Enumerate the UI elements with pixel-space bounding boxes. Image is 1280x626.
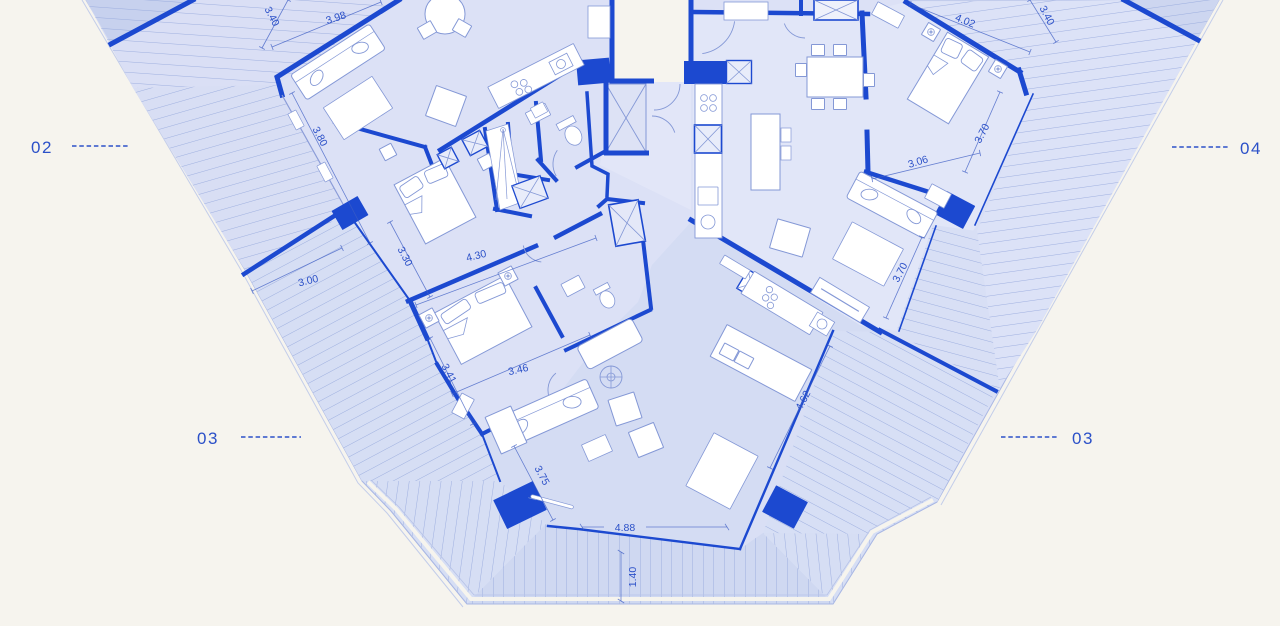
svg-text:03: 03 [197, 429, 219, 448]
svg-text:04: 04 [1240, 139, 1262, 158]
svg-text:02: 02 [31, 138, 53, 157]
svg-text:03: 03 [1072, 429, 1094, 448]
svg-text:1.40: 1.40 [627, 567, 639, 588]
svg-text:4.88: 4.88 [615, 522, 636, 534]
